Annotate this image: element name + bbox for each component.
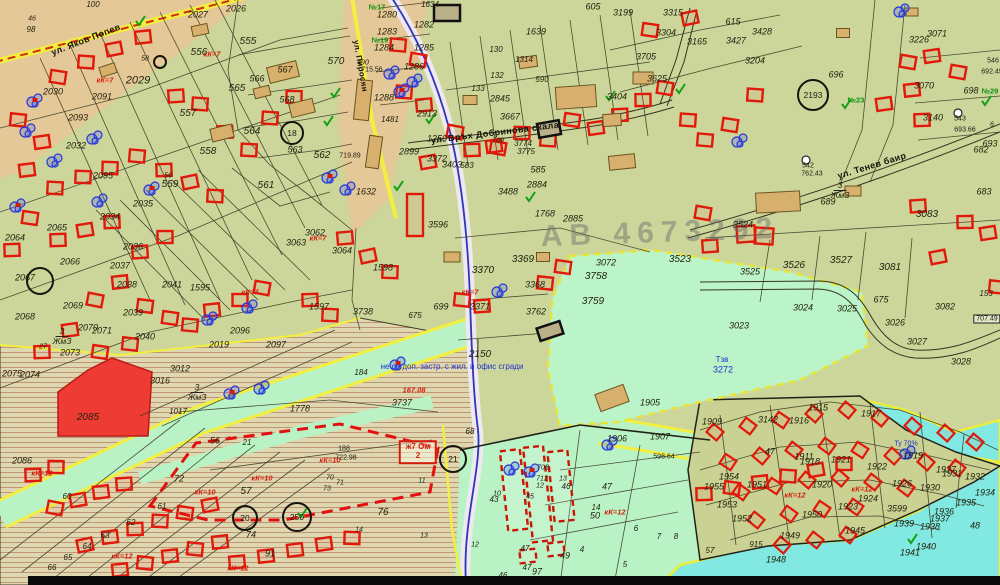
parcel-label: 4 xyxy=(580,546,584,554)
parcel-label: 1949 xyxy=(780,532,800,541)
parcel-label: 2067 xyxy=(15,274,35,283)
parcel-label: 3304 xyxy=(656,29,676,38)
parcel-label: 1286 xyxy=(404,63,424,72)
circled-label: 250 xyxy=(290,513,304,522)
circled-label: 20 xyxy=(240,514,249,523)
parcel-label: 1915 xyxy=(808,404,828,413)
parcel-label: 696 xyxy=(828,71,843,80)
parcel-label: 2027 xyxy=(188,11,208,20)
cadastral-map[interactable]: АВ 4673292 46981002026202720292030209120… xyxy=(0,0,1000,585)
parcel-label: 1916 xyxy=(789,417,809,426)
parcel-label: 3204 xyxy=(745,57,765,66)
parcel-label: 1951 xyxy=(747,481,767,490)
parcel-label: 1924 xyxy=(858,495,878,504)
parcel-label: 1952 xyxy=(732,515,752,524)
point-number-label: №23 xyxy=(848,96,865,104)
parcel-label: 1954 xyxy=(719,473,739,482)
point-number-label: №19 xyxy=(372,36,389,44)
parcel-label: 563 xyxy=(287,146,302,155)
coefficient-label: кК=10 xyxy=(251,474,272,482)
parcel-label: 3165 xyxy=(687,38,707,47)
coefficient-label: кК=12 xyxy=(31,469,52,477)
parcel-label: 3026 xyxy=(885,319,905,328)
parcel-label: 1926 xyxy=(892,480,912,489)
parcel-label: 1934 xyxy=(975,489,995,498)
zone-label: 3ЖмЗ xyxy=(831,181,850,199)
parcel-label: 1921 xyxy=(831,456,851,465)
parcel-label: 1941 xyxy=(900,549,920,558)
parcel-label: 21 xyxy=(243,439,252,447)
parcel-label: 1932 xyxy=(965,473,985,482)
parcel-label: 1284 xyxy=(374,44,394,53)
parcel-label: 2071 xyxy=(92,327,112,336)
parcel-label: 8 xyxy=(674,533,678,541)
parcel-label: 3368 xyxy=(525,281,545,290)
coefficient-label: кК=12 xyxy=(227,564,248,572)
parcel-label: 133 xyxy=(471,85,484,93)
parcel-label: 3064 xyxy=(332,247,352,256)
parcel-label: 3758 xyxy=(585,272,607,282)
parcel-label: 1919 xyxy=(903,452,923,461)
parcel-label: 3738 xyxy=(353,308,373,317)
street-label: ул. Яков Попев xyxy=(50,23,122,58)
parcel-label: 6 xyxy=(990,122,994,129)
coefficient-label: кК=12 xyxy=(111,552,132,560)
parcel-label: 12 xyxy=(471,542,479,549)
coefficient-label: кК=7 xyxy=(242,288,259,296)
parcel-label: 1906 xyxy=(607,435,627,444)
parcel-label: 2093 xyxy=(68,114,88,123)
parcel-label: 1950 xyxy=(802,511,822,520)
elevation-label: 542 xyxy=(802,163,814,170)
parcel-label: 1481 xyxy=(381,116,399,124)
circled-label: 2193 xyxy=(804,91,823,100)
parcel-label: 1280 xyxy=(377,11,397,20)
parcel-label: 47 xyxy=(765,448,775,457)
annotation-label: не се доп. застр. с жил. и офис сгради xyxy=(381,363,524,371)
parcel-label: 915 xyxy=(749,541,762,549)
parcel-label: 3071 xyxy=(927,30,947,39)
parcel-label: 70 xyxy=(326,475,334,482)
elevation-label: 707.49 xyxy=(973,315,1000,324)
parcel-label: 2885 xyxy=(563,215,583,224)
parcel-label: 47 xyxy=(602,483,612,492)
parcel-label: 3082 xyxy=(935,303,955,312)
parcel-label: 2899 xyxy=(399,148,419,157)
parcel-label: 65 xyxy=(64,554,73,562)
coefficient-label: кК=7 xyxy=(97,76,114,84)
parcel-label: 1922 xyxy=(867,463,887,472)
parcel-label: 558 xyxy=(200,147,217,157)
parcel-label: 2036 xyxy=(123,243,143,252)
coefficient-label: кК=12 xyxy=(784,491,805,499)
circled-label: 21 xyxy=(448,455,457,464)
parcel-label: 43 xyxy=(490,496,499,504)
elevation-label: 692.49 xyxy=(981,69,1000,76)
parcel-label: 1907 xyxy=(650,433,670,442)
parcel-label: 2069 xyxy=(63,302,83,311)
parcel-label: 3775 xyxy=(517,148,535,156)
parcel-label: 590 xyxy=(535,76,548,84)
parcel-label: 47 xyxy=(523,564,532,572)
parcel-label: 11 xyxy=(418,478,425,485)
annotation-label: Тзв xyxy=(716,356,729,364)
parcel-label: 3737 xyxy=(392,399,412,408)
parcel-label: 583 xyxy=(460,162,473,170)
parcel-label: 60 xyxy=(63,493,72,501)
parcel-label: 3023 xyxy=(729,322,749,331)
parcel-label: 683 xyxy=(976,188,991,197)
parcel-label: 61 xyxy=(158,503,167,511)
parcel-label: 565 xyxy=(229,84,246,94)
parcel-label: 557 xyxy=(180,109,197,119)
parcel-label: 3527 xyxy=(830,256,852,266)
parcel-label: 153 xyxy=(979,290,992,298)
parcel-label: 3081 xyxy=(879,263,901,273)
parcel-label: 2097 xyxy=(266,341,286,350)
parcel-label: 1768 xyxy=(535,210,555,219)
parcel-label: 2096 xyxy=(230,327,250,336)
parcel-label: 62 xyxy=(127,519,136,527)
parcel-label: 7 xyxy=(657,533,661,541)
parcel-label: 699 xyxy=(433,303,448,312)
parcel-label: 559 xyxy=(162,180,179,190)
parcel-label: 76 xyxy=(377,508,388,518)
parcel-label: 3199 xyxy=(613,9,633,18)
parcel-label: 3525 xyxy=(740,268,760,277)
parcel-label: 63 xyxy=(101,532,110,540)
labels-layer: АВ 4673292 46981002026202720292030209120… xyxy=(0,0,1000,585)
parcel-label: 615 xyxy=(725,18,740,27)
parcel-label: 71 xyxy=(336,480,344,487)
parcel-label: 2038 xyxy=(117,281,137,290)
bottom-black-bar xyxy=(28,576,1000,585)
parcel-label: 567 xyxy=(277,66,292,75)
point-number-label: №17 xyxy=(369,3,386,11)
parcel-label: 100 xyxy=(86,1,99,9)
parcel-label: 49 xyxy=(560,552,570,561)
parcel-label: 2035 xyxy=(133,200,153,209)
parcel-label: 3403 xyxy=(442,161,462,170)
coefficient-label: 167.08 xyxy=(403,386,426,394)
parcel-label: 1939 xyxy=(894,520,914,529)
parcel-label: 3524 xyxy=(733,221,753,230)
parcel-label: 1598 xyxy=(373,264,393,273)
parcel-label: 2085 xyxy=(77,413,99,423)
parcel-label: 3370 xyxy=(472,266,494,276)
parcel-label: 3759 xyxy=(582,297,604,307)
parcel-label: 3070 xyxy=(914,82,934,91)
parcel-label: 605 xyxy=(585,3,600,12)
parcel-label: 2019 xyxy=(209,341,229,350)
parcel-label: 3599 xyxy=(887,505,907,514)
parcel-label: 3025 xyxy=(837,305,857,314)
parcel-label: 3012 xyxy=(170,365,190,374)
parcel-label: 3028 xyxy=(951,358,971,367)
parcel-label: 46 xyxy=(562,483,571,491)
parcel-label: 1288 xyxy=(374,94,394,103)
parcel-label: 1634 xyxy=(421,1,439,9)
coefficient-label: кК=7 xyxy=(204,50,221,58)
parcel-label: 1938 xyxy=(920,523,940,532)
parcel-label: 3667 xyxy=(500,113,520,122)
parcel-label: 3371 xyxy=(470,303,490,312)
parcel-label: 46 xyxy=(28,16,36,23)
parcel-label: 1918 xyxy=(800,458,820,467)
point-number-label: №29 xyxy=(982,87,999,95)
parcel-label: 56 xyxy=(164,173,172,180)
parcel-label: 2845 xyxy=(490,95,510,104)
parcel-label: 13 xyxy=(420,533,428,540)
parcel-label: 27 xyxy=(39,344,47,351)
parcel-label: 1923 xyxy=(838,503,858,512)
parcel-label: 3404 xyxy=(607,93,627,102)
parcel-label: 2064 xyxy=(5,234,25,243)
parcel-label: 45 xyxy=(526,494,534,501)
parcel-label: 3315 xyxy=(663,9,683,18)
parcel-label: 1282 xyxy=(414,21,434,30)
parcel-label: 1935 xyxy=(956,499,976,508)
parcel-label: 1595 xyxy=(190,284,210,293)
parcel-label: 2086 xyxy=(12,457,32,466)
parcel-label: 1017 xyxy=(169,408,187,416)
street-label: ул. Тенев баир xyxy=(837,151,908,180)
parcel-label: 1778 xyxy=(290,405,310,414)
parcel-label: 3596 xyxy=(428,221,448,230)
parcel-label: 73 xyxy=(323,486,331,493)
parcel-label: 1955 xyxy=(704,483,724,492)
parcel-label: 2032 xyxy=(66,142,86,151)
elevation-label: 722.98 xyxy=(335,455,356,462)
parcel-label: 2037 xyxy=(110,262,130,271)
parcel-label: 56 xyxy=(210,437,220,446)
parcel-label: 3762 xyxy=(526,308,546,317)
parcel-label: 1639 xyxy=(526,28,546,37)
parcel-label: 1931 xyxy=(942,470,962,479)
parcel-label: 1948 xyxy=(766,556,786,565)
parcel-label: 568 xyxy=(279,96,294,105)
parcel-label: 2884 xyxy=(527,181,547,190)
parcel-label: 91 xyxy=(265,550,275,559)
parcel-label: 2073 xyxy=(60,349,80,358)
parcel-label: 3625 xyxy=(647,75,667,84)
parcel-label: 2030 xyxy=(43,88,63,97)
parcel-label: 2095 xyxy=(93,172,113,181)
parcel-label: 66 xyxy=(48,564,57,572)
parcel-label: 2913 xyxy=(417,110,437,119)
parcel-label: 2068 xyxy=(15,313,35,322)
parcel-label: 562 xyxy=(314,151,331,161)
parcel-label: 2026 xyxy=(226,5,246,14)
parcel-label: 2040 xyxy=(135,333,155,342)
parcel-label: 5 xyxy=(623,561,627,569)
parcel-label: 2029 xyxy=(126,76,150,87)
parcel-label: 2034 xyxy=(100,213,120,222)
parcel-label: 48 xyxy=(970,522,980,531)
parcel-label: 3016 xyxy=(150,377,170,386)
coefficient-label: кК=10 xyxy=(194,488,215,496)
parcel-label: 3705 xyxy=(636,53,656,62)
parcel-label: 3140 xyxy=(923,114,943,123)
zone-label: 3ЖмЗ xyxy=(53,327,72,345)
annotation-label: 3272 xyxy=(713,366,733,375)
parcel-label: 3428 xyxy=(752,28,772,37)
parcel-label: 47 xyxy=(521,545,530,553)
parcel-label: 2150 xyxy=(469,350,491,360)
parcel-label: 74 xyxy=(246,531,256,540)
parcel-label: 58 xyxy=(141,56,149,63)
parcel-label: 3024 xyxy=(793,304,813,313)
parcel-label: 3027 xyxy=(907,338,927,347)
parcel-label: 3063 xyxy=(286,239,306,248)
parcel-label: 2074 xyxy=(20,371,40,380)
coefficient-label: кК=12 xyxy=(851,485,872,493)
parcel-label: 132 xyxy=(490,72,503,80)
parcel-label: 570 xyxy=(328,57,345,67)
parcel-label: 2039 xyxy=(123,309,143,318)
parcel-label: 1953 xyxy=(717,501,737,510)
parcel-label: 57 xyxy=(706,547,715,555)
parcel-label: 1930 xyxy=(920,484,940,493)
parcel-label: 6 xyxy=(634,525,638,533)
parcel-label: 1285 xyxy=(414,44,434,53)
parcel-label: 64 xyxy=(83,543,92,551)
elevation-label: 693.66 xyxy=(954,127,975,134)
elevation-label: 543 xyxy=(954,116,966,123)
zone-label: 3ЖмЗ xyxy=(188,383,207,401)
red-zone-designation-label: ж7 Ом2 xyxy=(399,440,437,464)
parcel-label: 698 xyxy=(963,87,978,96)
parcel-label: 708 xyxy=(537,465,549,472)
parcel-label: 14 xyxy=(355,527,363,534)
parcel-label: 1905 xyxy=(640,399,660,408)
coefficient-label: кК=7 xyxy=(310,234,327,242)
parcel-label: 68 xyxy=(466,428,475,436)
parcel-label: 12 xyxy=(536,483,544,490)
coefficient-label: кК=7 xyxy=(462,288,479,296)
elevation-label: 719.89 xyxy=(339,153,360,160)
parcel-label: 2066 xyxy=(60,258,80,267)
parcel-label: 1917 xyxy=(861,410,881,419)
parcel-label: 1597 xyxy=(309,303,329,312)
parcel-label: 1632 xyxy=(356,188,376,197)
parcel-label: 2065 xyxy=(47,224,67,233)
parcel-label: 184 xyxy=(354,369,367,377)
circled-label: 18 xyxy=(287,129,296,138)
parcel-label: 709 xyxy=(492,138,504,145)
parcel-label: 50 xyxy=(590,512,600,521)
parcel-label: 3523 xyxy=(669,255,691,265)
parcel-label: 98 xyxy=(27,26,36,34)
coefficient-label: кК=12 xyxy=(604,508,625,516)
elevation-label: 762.43 xyxy=(801,171,822,178)
parcel-label: 566 xyxy=(249,75,264,84)
parcel-label: 3427 xyxy=(726,37,746,46)
elevation-label: 546 xyxy=(987,58,999,65)
parcel-label: 3142 xyxy=(758,416,778,425)
parcel-label: 712 xyxy=(536,476,548,483)
parcel-label: 2041 xyxy=(162,281,182,290)
annotation-label: Ту 70% xyxy=(894,441,917,448)
parcel-label: 3526 xyxy=(783,261,805,271)
parcel-label: 3083 xyxy=(916,210,938,220)
parcel-label: 585 xyxy=(530,166,545,175)
parcel-label: 682 xyxy=(973,146,988,155)
parcel-label: 1314 xyxy=(515,56,533,64)
parcel-label: 130 xyxy=(489,46,502,54)
parcel-label: 72 xyxy=(174,475,184,484)
parcel-label: 2075 xyxy=(2,370,22,379)
parcel-label: 675 xyxy=(873,296,888,305)
parcel-label: 57 xyxy=(240,487,251,497)
parcel-label: 2091 xyxy=(92,93,112,102)
parcel-label: 561 xyxy=(258,181,275,191)
parcel-label: 555 xyxy=(240,37,257,47)
elevation-label: 598.64 xyxy=(653,454,674,461)
parcel-label: 1909 xyxy=(702,418,722,427)
parcel-label: 675 xyxy=(408,312,421,320)
parcel-label: 1945 xyxy=(845,527,865,536)
parcel-label: 3369 xyxy=(512,255,534,265)
parcel-label: 564 xyxy=(244,127,261,137)
elevation-label: 188 xyxy=(338,446,350,453)
parcel-label: 3072 xyxy=(596,259,616,268)
parcel-label: 3488 xyxy=(498,188,518,197)
parcel-label: 1920 xyxy=(812,481,832,490)
